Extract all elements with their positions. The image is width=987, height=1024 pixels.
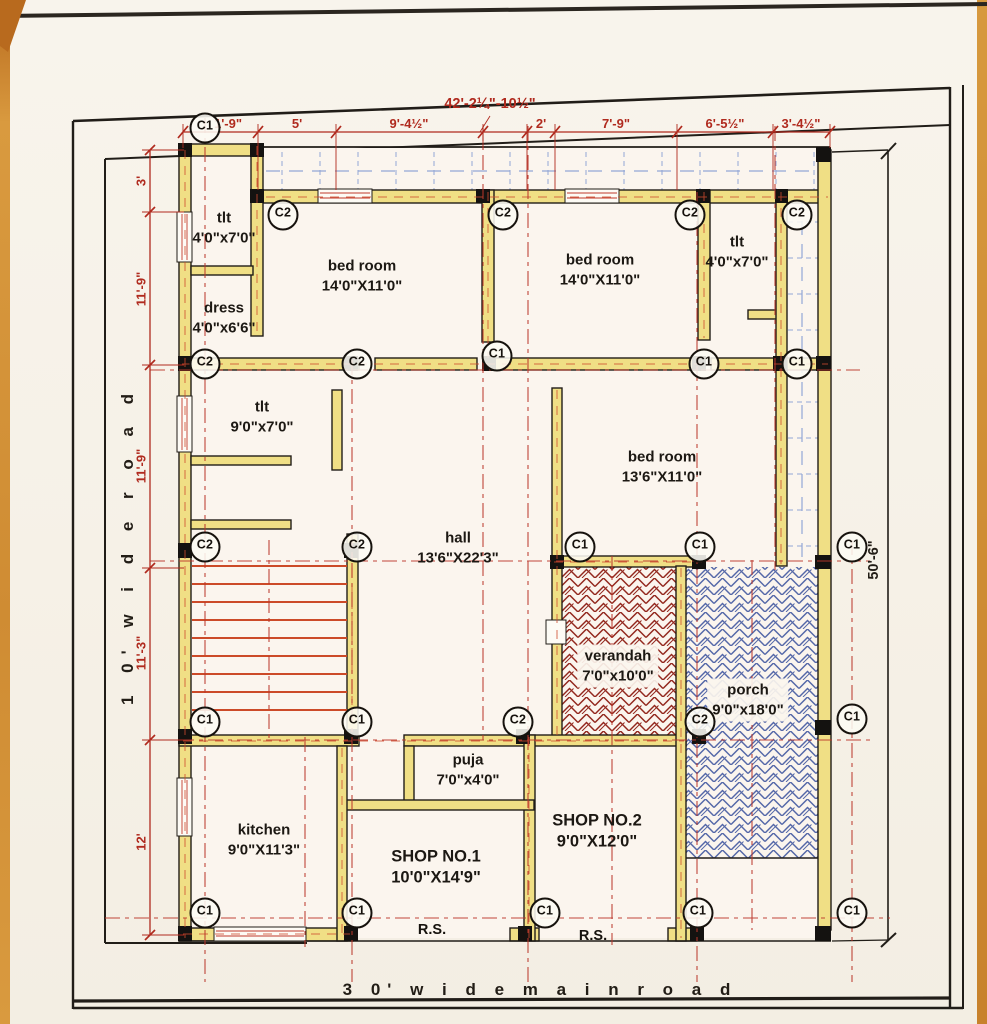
column-marker-c1: C1	[685, 532, 716, 563]
column-marker-c2: C2	[342, 349, 373, 380]
dim-top-4: 2'	[536, 116, 546, 131]
room-bed-1: bed room14'0"X11'0"	[322, 257, 403, 296]
dim-left-1: 3'	[134, 176, 149, 186]
floor-plan-sheet: 42'-2¼"-10½" 50'-6" 1'-9" 5' 9'-4½" 2' 7…	[0, 0, 987, 1024]
column-marker-c1: C1	[342, 707, 373, 738]
column-marker-c1: C1	[190, 707, 221, 738]
room-verandah: verandah7'0"x10'0"	[577, 645, 658, 688]
room-bed-2: bed room14'0"X11'0"	[560, 251, 641, 290]
column-marker-c2: C2	[488, 200, 519, 231]
room-bed-3: bed room13'6"X11'0"	[622, 448, 703, 487]
column-marker-c2: C2	[685, 707, 716, 738]
dim-top-6: 6'-5½"	[706, 116, 745, 131]
room-shop-2: SHOP NO.29'0"X12'0"	[552, 811, 642, 854]
column-marker-c2: C2	[342, 532, 373, 563]
dim-top-7: 3'-4½"	[782, 116, 821, 131]
dim-top-3: 9'-4½"	[390, 116, 429, 131]
rolling-shutter-label-1: R.S.	[418, 922, 446, 938]
dim-left-5: 12'	[134, 833, 149, 851]
room-tlt-top-left: tlt4'0"x7'0"	[192, 209, 255, 248]
column-marker-c2: C2	[268, 200, 299, 231]
room-kitchen: kitchen9'0"X11'3"	[228, 821, 300, 860]
column-marker-c1: C1	[482, 341, 513, 372]
room-tlt-middle: tlt9'0"x7'0"	[230, 398, 293, 437]
column-marker-c2: C2	[190, 349, 221, 380]
room-shop-1: SHOP NO.110'0"X14'9"	[391, 847, 481, 890]
overall-width-dimension: 42'-2¼"-10½"	[444, 96, 535, 112]
rolling-shutter-label-2: R.S.	[579, 928, 607, 944]
dim-left-2: 11'-9"	[134, 272, 149, 307]
column-marker-c2: C2	[503, 707, 534, 738]
column-marker-c1: C1	[565, 532, 596, 563]
room-puja: puja7'0"x4'0"	[436, 751, 499, 790]
column-marker-c2: C2	[782, 200, 813, 231]
column-marker-c1: C1	[190, 898, 221, 929]
bottom-road-label: 3 0' w i d e m a i n r o a d	[343, 980, 738, 1000]
overall-height-dimension: 50'-6"	[866, 540, 882, 579]
column-marker-c2: C2	[190, 532, 221, 563]
column-marker-c1: C1	[837, 898, 868, 929]
left-road-label: 1 0' w i d e r o a d	[118, 385, 138, 705]
column-marker-c1: C1	[782, 349, 813, 380]
column-marker-c1: C1	[837, 704, 868, 735]
room-porch: porch9'0"x18'0"	[707, 679, 788, 722]
room-hall: hall13'6"X22'3"	[417, 529, 498, 568]
column-marker-c2: C2	[675, 200, 706, 231]
column-marker-c1: C1	[530, 898, 561, 929]
column-marker-c1: C1	[689, 349, 720, 380]
room-tlt-top-right: tlt4'0"x7'0"	[705, 233, 768, 272]
column-marker-c1: C1	[837, 532, 868, 563]
dim-top-2: 5'	[292, 116, 302, 131]
plan-linework	[0, 0, 987, 1024]
room-dress: dress4'0"x6'6"	[192, 299, 255, 338]
column-marker-c1: C1	[342, 898, 373, 929]
column-marker-c1: C1	[683, 898, 714, 929]
column-marker-c1: C1	[190, 113, 221, 144]
dim-top-5: 7'-9"	[602, 116, 630, 131]
